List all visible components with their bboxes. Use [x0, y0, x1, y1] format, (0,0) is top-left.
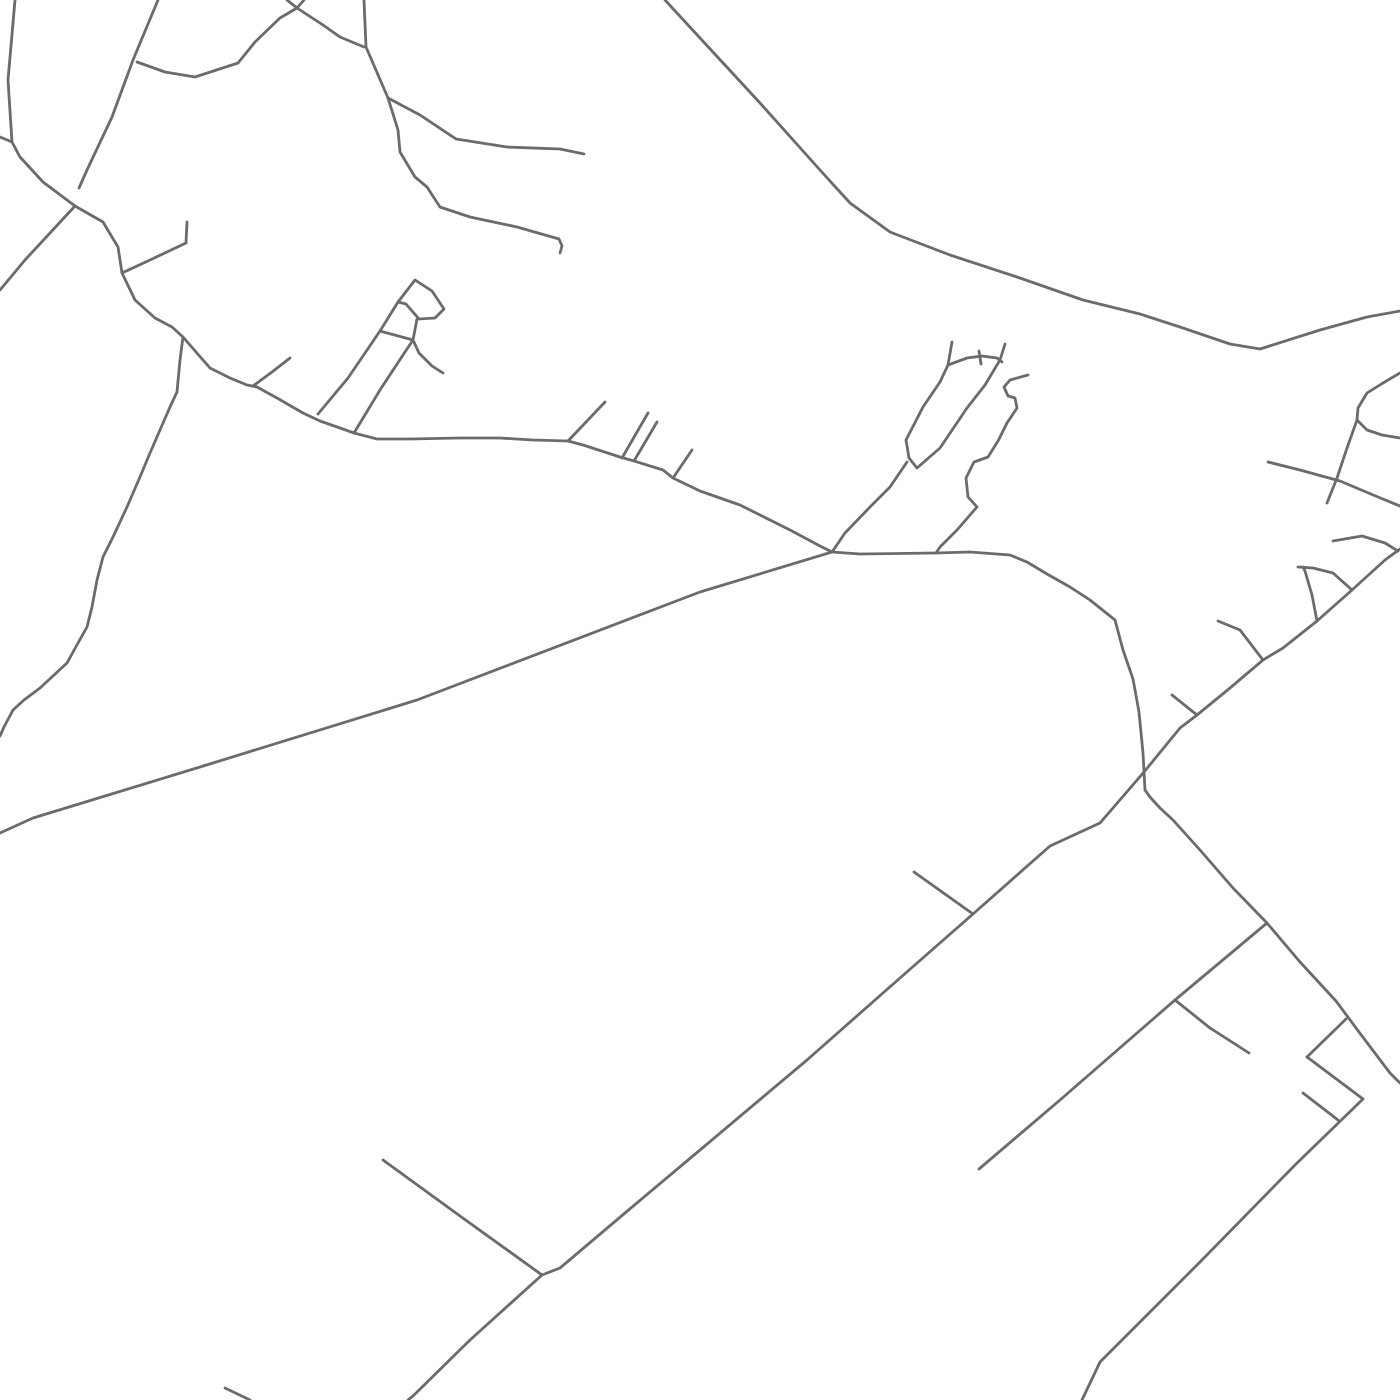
road-bottom-right-diagonal: [1082, 1099, 1363, 1400]
road-steep-deadend-road: [79, 0, 158, 188]
road-mid-diagonal: [979, 923, 1267, 1169]
road-oval-top-tick: [979, 351, 981, 364]
road-j2-sw-diagonal: [0, 206, 75, 290]
road-main-road-tick-2: [622, 413, 648, 458]
road-corridor-crossbar: [380, 331, 413, 340]
road-corridor-left-line: [318, 302, 398, 414]
road-main-road: [75, 206, 1400, 1083]
road-top-long-curve: [665, 0, 1400, 349]
map-canvas: [0, 0, 1400, 1400]
road-big-diagonal: [408, 549, 1400, 1400]
road-bottom-right-tick: [1303, 1093, 1338, 1120]
road-z-link-1: [1307, 1019, 1346, 1057]
road-hook-road: [936, 375, 1028, 553]
road-diagonal-tick-3: [1218, 621, 1263, 660]
road-right-c-tail: [1327, 420, 1357, 503]
road-nw-corner-spur: [0, 137, 12, 142]
road-flag-loop: [398, 280, 444, 319]
road-sw-long-road: [0, 552, 832, 833]
road-diagonal-sw-branch: [383, 1160, 542, 1275]
road-oval-tail: [832, 462, 907, 552]
road-map-svg: [0, 0, 1400, 1400]
road-main-road-tick-1: [568, 402, 605, 441]
road-north-road-east-branch: [388, 98, 584, 154]
road-main-road-tick-3: [634, 422, 657, 461]
road-right-c-shape: [1357, 373, 1400, 438]
road-j3-branch-stem: [186, 222, 187, 243]
road-left-winding-road: [0, 337, 183, 736]
road-corridor-right-line: [354, 319, 417, 433]
road-x-cross-line-up: [137, 0, 304, 77]
road-flag-zigzag: [413, 340, 443, 373]
road-nw-corner-road: [8, 0, 75, 206]
road-diagonal-tick-2: [1303, 567, 1317, 621]
road-mid-diagonal-spur: [1175, 1000, 1249, 1053]
road-bottom-edge-stub: [225, 1388, 250, 1400]
road-road-spur-ne: [253, 358, 290, 386]
road-oval-top-bar: [948, 356, 1002, 365]
road-diagonal-tick-5: [914, 872, 973, 914]
road-main-road-tick-4: [673, 450, 692, 478]
road-diagonal-arc-spur: [1333, 536, 1398, 551]
road-j3-ne-branch: [122, 243, 186, 273]
road-z-link-2: [1307, 1057, 1363, 1099]
road-oval-stem: [948, 342, 952, 365]
road-north-road: [364, 0, 562, 253]
road-diagonal-tick-4: [1172, 695, 1197, 715]
